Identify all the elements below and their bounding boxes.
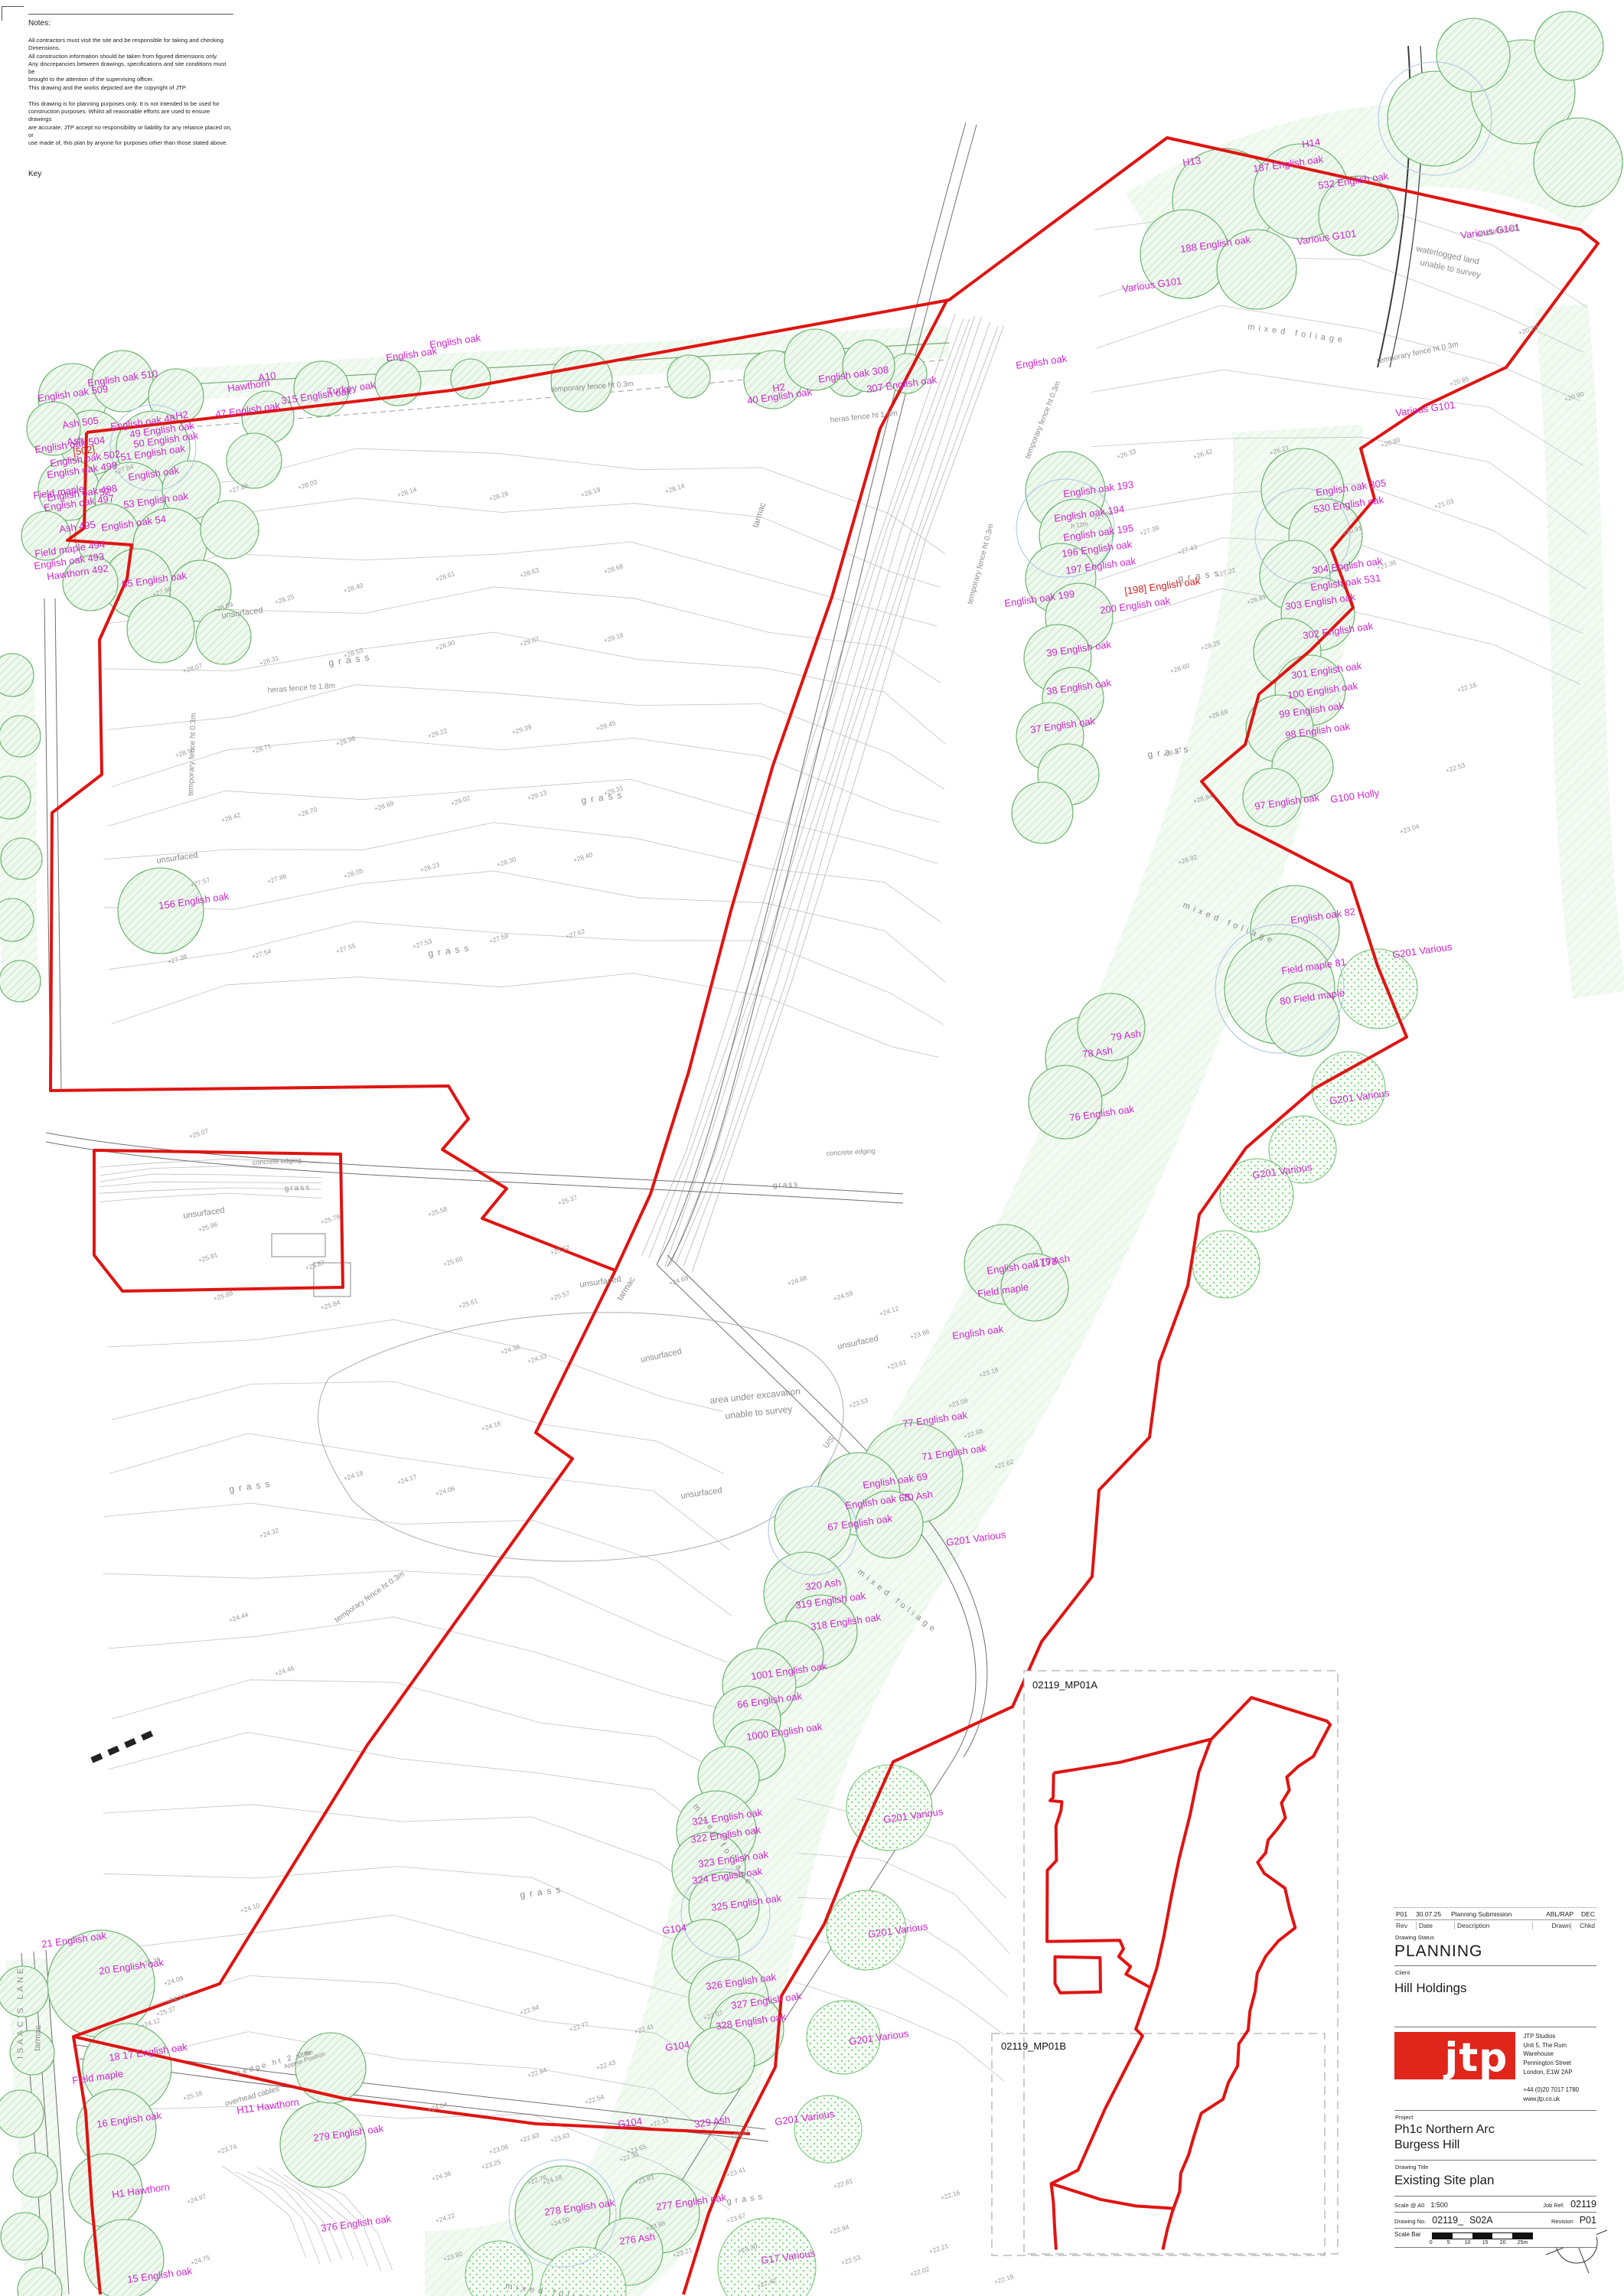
spot-height: +24.22 xyxy=(435,2211,456,2225)
spot-height: +27.39 xyxy=(1139,523,1160,537)
area-label: grass xyxy=(726,2192,767,2206)
scale-label: Scale @ A0 xyxy=(1394,2202,1424,2209)
drawing-no-value: S02A xyxy=(1469,2215,1493,2226)
contour-line xyxy=(109,1433,729,1550)
client-name: Hill Holdings xyxy=(1394,1981,1596,1996)
drawing-no-label: Drawing No. xyxy=(1394,2218,1426,2225)
inset-a-label: 02119_MP01A xyxy=(1032,1679,1097,1691)
spot-height: +22.53 xyxy=(840,2253,862,2267)
spot-height: +28.26 xyxy=(488,489,510,503)
tree-canopy xyxy=(0,960,41,1002)
spot-height: +24.10 xyxy=(240,1901,261,1915)
spot-height: +24.32 xyxy=(259,1526,280,1540)
inset-a-box xyxy=(1024,1671,1338,2254)
area-label: temporary fence ht 0.3m xyxy=(333,1570,406,1624)
spot-height: +25.84 xyxy=(320,1298,341,1312)
spot-height: +25.60 xyxy=(442,1254,464,1268)
contour-line xyxy=(112,974,939,1058)
contour-line xyxy=(112,1381,724,1473)
spot-height: +26.33 xyxy=(1116,447,1137,461)
tree-canopy xyxy=(551,351,612,412)
spot-height: +28.03 xyxy=(297,478,318,491)
area-label: concrete edging xyxy=(253,1156,302,1166)
spot-height: +22.53 xyxy=(1445,761,1466,775)
site-plan-map: English oak 509English oak 510Ash 505Eng… xyxy=(0,0,1624,2296)
area-label: unsurfaced xyxy=(183,1206,226,1221)
drawing-title: Existing Site plan xyxy=(1394,2173,1596,2188)
spot-height: +28.31 xyxy=(259,654,280,667)
area-label: unable to survey xyxy=(725,1404,793,1421)
area-label: tarmac xyxy=(33,2025,43,2052)
spot-height: +24.88 xyxy=(787,1274,808,1287)
spot-height: +25.78 xyxy=(320,1212,341,1226)
scale-value: 1:500 xyxy=(1430,2201,1448,2209)
spot-height: +28.98 xyxy=(335,734,357,748)
spot-height: +25.87 xyxy=(305,1258,326,1272)
tree-label: H2 xyxy=(174,409,189,422)
spot-height: +24.59 xyxy=(833,1289,854,1303)
shrub-mass xyxy=(794,2095,862,2163)
spot-height: +22.21 xyxy=(928,2242,950,2255)
area-label: heras fence ht 1.8m xyxy=(830,409,898,425)
drawing-status-label: Drawing Status xyxy=(1395,1934,1596,1941)
spot-height: +22.94 xyxy=(519,2003,540,2017)
contour-line xyxy=(222,2166,306,2258)
spot-height: +28.71 xyxy=(251,742,272,755)
rev-description: Planning Submission xyxy=(1451,1910,1538,1918)
contour-line xyxy=(649,319,964,1258)
project-label: Project xyxy=(1395,2114,1596,2121)
spot-height: +24.06 xyxy=(435,1484,456,1498)
spot-height: +28.19 xyxy=(580,485,602,499)
spot-height: +24.97 xyxy=(186,2192,207,2206)
spot-height: +28.07 xyxy=(182,661,204,675)
area-label: tarmac xyxy=(751,501,768,529)
spot-height: +24.36 xyxy=(431,2169,452,2183)
tree-canopy xyxy=(280,2102,366,2187)
tree-canopy xyxy=(1029,1065,1102,1139)
area-label: unsurfaced xyxy=(680,1486,723,1501)
spot-height: +23.86 xyxy=(909,1327,931,1341)
spot-height: +25.61 xyxy=(458,1296,479,1310)
spot-height: +27.59 xyxy=(488,931,510,945)
spot-height: +29.07 xyxy=(519,634,540,648)
spot-height: +22.54 xyxy=(584,2092,605,2106)
contour-line xyxy=(657,319,970,1264)
contour-line xyxy=(104,1503,732,1616)
notes-paragraph-2: This drawing is for planning purposes on… xyxy=(28,100,233,148)
drawing-sheet: { "notes": { "title": "Notes:", "para1":… xyxy=(0,0,1624,2296)
spot-height: +24.12 xyxy=(879,1304,900,1318)
scale-bar: 0 5 10 15 20 25m xyxy=(1432,2232,1538,2245)
area-label: grass xyxy=(519,1883,566,1900)
spot-height: +29.22 xyxy=(427,726,448,740)
tree-label: 376 English oak xyxy=(320,2213,392,2234)
tree-label: G201 Various xyxy=(1391,941,1453,960)
spot-height: +28.25 xyxy=(274,592,295,606)
spot-height: +27.38 xyxy=(167,952,188,966)
tree-canopy xyxy=(1534,11,1603,80)
spot-height: +22.81 xyxy=(833,2177,854,2190)
revision-row: P01 30.07.25 Planning Submission ABL/RAP… xyxy=(1394,1908,1596,1919)
spot-height: +23.67 xyxy=(726,2211,747,2225)
tree-label: English oak xyxy=(429,332,481,351)
spot-height: +23.06 xyxy=(488,2142,510,2156)
area-label: temporary fence ht 0.3m xyxy=(966,523,996,605)
drawing-title-label: Drawing Title xyxy=(1395,2164,1596,2170)
drawing-status: PLANNING xyxy=(1394,1942,1596,1961)
area-label: ISAAC'S LANE xyxy=(16,1965,25,2059)
project-line2: Burgess Hill xyxy=(1394,2138,1596,2154)
key-plan-insets xyxy=(992,1671,1338,2255)
spot-height: +24.33 xyxy=(527,1352,548,1365)
tree-canopy xyxy=(0,716,41,757)
revision-value: P01 xyxy=(1580,2215,1596,2226)
rev-value: P01 xyxy=(1396,1910,1416,1918)
contour-line xyxy=(99,1174,321,1182)
spot-height: +27.54 xyxy=(251,947,272,960)
spot-height: +25.18 xyxy=(182,2089,204,2102)
tree-canopy xyxy=(667,355,710,398)
spot-height: +24.69 xyxy=(668,1274,690,1287)
area-label: unsurfaced xyxy=(579,1275,622,1290)
contour-line xyxy=(99,1193,321,1202)
tree-canopy xyxy=(1534,118,1622,207)
tree-canopy xyxy=(687,2027,755,2094)
header-rev: Rev xyxy=(1396,1922,1416,1929)
area-label: unsurfaced xyxy=(156,851,199,866)
rev-date: 30.07.25 xyxy=(1416,1910,1451,1918)
notes-block: Notes: All contractors must visit the si… xyxy=(28,14,233,178)
tree-label: G100 Holly xyxy=(1329,787,1380,805)
job-ref-value: 02119 xyxy=(1570,2199,1596,2210)
spot-height: +23.25 xyxy=(481,2157,502,2171)
spot-height: +25.37 xyxy=(557,1193,579,1207)
contour-line xyxy=(108,1617,722,1709)
site-boundary xyxy=(51,138,1598,2294)
spot-height: +27.43 xyxy=(1177,543,1198,556)
contour-line xyxy=(109,1732,730,1851)
area-label: grass xyxy=(427,942,474,959)
jtp-logo-text: jtp xyxy=(1445,2035,1508,2081)
tree-canopy xyxy=(1,2213,48,2260)
rev-chkd: DEC xyxy=(1573,1910,1595,1918)
spot-height: +23.83 xyxy=(549,2131,571,2144)
spot-height: +28.40 xyxy=(343,581,364,595)
area-label: grass xyxy=(285,1183,311,1193)
revision-label: Revision xyxy=(1551,2218,1573,2225)
area-label: area under excavation xyxy=(709,1386,801,1406)
key-heading: Key xyxy=(28,170,233,178)
area-label: temporary fence ht 0.3m xyxy=(1024,380,1063,461)
spot-height: +22.77 xyxy=(569,2020,590,2033)
spot-height: +21.03 xyxy=(1433,497,1455,510)
scale-bar-label: Scale Bar xyxy=(1394,2231,1421,2238)
contour-line xyxy=(109,1915,722,2007)
spot-height: +22.16 xyxy=(940,2188,961,2202)
spot-height: +28.90 xyxy=(435,638,456,652)
spot-height: +23.61 xyxy=(886,1358,908,1371)
contour-line xyxy=(103,1867,726,1958)
spot-height: +24.16 xyxy=(481,1419,502,1433)
header-chkd: Chkd xyxy=(1570,1922,1595,1929)
spot-height: +27.86 xyxy=(266,872,288,885)
spot-height: +22.18 xyxy=(993,2272,1015,2286)
spot-height: +26.42 xyxy=(1192,447,1214,461)
spot-height: +28.30 xyxy=(496,855,517,869)
spot-height: +27.57 xyxy=(190,876,211,889)
spot-height: +28.05 xyxy=(343,866,364,880)
tree-canopy xyxy=(1,838,42,879)
contour-line xyxy=(104,871,946,982)
spot-height: +28.70 xyxy=(297,805,318,819)
spot-height: +29.45 xyxy=(595,719,617,732)
spot-height: +27.88 xyxy=(228,481,249,495)
spot-height: +25.58 xyxy=(427,1205,448,1218)
tree-label: 52 xyxy=(98,485,110,498)
spot-height: +23.53 xyxy=(848,1396,869,1410)
spot-height: +28.89 xyxy=(373,799,395,813)
header-description: Description xyxy=(1454,1922,1532,1929)
sheet-corner-mark xyxy=(2,6,24,21)
spot-height: +20.73 xyxy=(1518,323,1539,337)
area-label: grass xyxy=(228,1478,275,1495)
contour-line xyxy=(670,317,982,1265)
area-label: concrete edging xyxy=(827,1147,876,1157)
spot-height: +24.38 xyxy=(500,1342,521,1356)
tree-label: English oak xyxy=(1015,353,1068,371)
header-date: Date xyxy=(1416,1922,1454,1929)
spot-height: +23.04 xyxy=(1399,822,1420,836)
spot-height: +27.62 xyxy=(565,927,586,941)
area-label: unsurfaced xyxy=(640,1347,683,1365)
notes-paragraph-1: All contractors must visit the site and … xyxy=(28,37,233,92)
notes-title: Notes: xyxy=(28,19,233,28)
spot-height: +23.74 xyxy=(217,2142,238,2156)
contour-line xyxy=(236,2172,320,2264)
spot-height: +28.42 xyxy=(220,810,242,824)
contour-line xyxy=(665,316,975,1267)
spot-height: +28.40 xyxy=(572,850,594,864)
studio-address: JTP Studios Unit 5, The Rum Warehouse Pe… xyxy=(1515,2032,1596,2104)
inset-b-label: 02119_MP01B xyxy=(1001,2040,1066,2052)
spot-height: +28.63 xyxy=(519,566,540,579)
spot-height: +24.18 xyxy=(343,1469,364,1482)
tree-canopy xyxy=(227,433,282,488)
area-label: temporary fence ht 0.3m xyxy=(1376,341,1459,366)
tree-canopy xyxy=(1436,18,1510,92)
spot-height: +25.07 xyxy=(188,1127,210,1140)
drawing-no-prefix: 02119_ xyxy=(1432,2215,1463,2226)
tree-canopy xyxy=(295,2033,366,2103)
contour-line xyxy=(112,737,940,822)
tree-canopy xyxy=(13,2153,57,2197)
spot-height: +24.09 xyxy=(163,1974,184,1988)
spot-height: +22.83 xyxy=(519,2131,540,2144)
shrub-mass xyxy=(1192,1231,1260,1298)
spot-height: +24.13 xyxy=(165,1991,187,2005)
spot-height: +28.23 xyxy=(419,860,441,874)
area-label: unsurfaced xyxy=(836,1334,879,1352)
tree-label: 200 English oak xyxy=(1099,595,1171,616)
contour-line xyxy=(103,1570,727,1662)
spot-height: +22.02 xyxy=(909,2265,931,2278)
spot-height: +28.60 xyxy=(1169,661,1191,675)
contour-line xyxy=(109,921,944,1025)
area-label: mixed foliage xyxy=(1247,322,1347,345)
revision-table-headers: Rev Date Description Drawn Chkd xyxy=(1394,1919,1596,1931)
spot-height: +28.14 xyxy=(664,481,686,495)
spot-height: +25.91 xyxy=(197,1251,219,1264)
jtp-logo: jtp xyxy=(1394,2032,1515,2079)
title-block: P01 30.07.25 Planning Submission ABL/RAP… xyxy=(1394,1907,1596,2248)
client-label: Client xyxy=(1395,1969,1596,1976)
scale-tick: 25m xyxy=(1518,2240,1538,2245)
spot-height: +29.13 xyxy=(527,788,548,802)
spot-height: +24.75 xyxy=(190,2253,211,2267)
spot-height: +24.17 xyxy=(396,1473,418,1486)
tree-canopy xyxy=(201,501,259,559)
spot-height: +22.94 xyxy=(829,2223,850,2236)
spot-height: +22.16 xyxy=(1456,680,1478,694)
job-ref-label: Job Ref. xyxy=(1543,2202,1564,2209)
contour-line xyxy=(100,1166,322,1176)
tree-canopy xyxy=(0,2090,44,2138)
spot-height: +29.18 xyxy=(603,631,624,644)
spot-height: +29.39 xyxy=(511,722,533,736)
spot-height: +25.96 xyxy=(197,1220,219,1234)
contour-line xyxy=(103,1805,732,1913)
tree-label: Various G101 xyxy=(1394,399,1456,419)
spot-height: +24.12 xyxy=(140,2016,161,2030)
tree-canopy xyxy=(451,359,491,399)
contour-line xyxy=(103,823,941,923)
project-line1: Ph1c Northern Arc xyxy=(1394,2122,1596,2138)
spot-height: +28.61 xyxy=(435,569,456,583)
spot-height: +24.46 xyxy=(274,1664,295,1678)
spot-height: +27.55 xyxy=(335,941,357,955)
spot-height: +22.43 xyxy=(595,2058,617,2072)
tree-canopy xyxy=(1012,782,1073,843)
rev-drawn: ABL/RAP xyxy=(1538,1910,1573,1918)
header-drawn: Drawn xyxy=(1532,1922,1570,1929)
spot-height: +20.80 xyxy=(1380,435,1401,449)
contour-line xyxy=(109,779,938,863)
tree-canopy xyxy=(127,595,194,663)
spot-height: +28.68 xyxy=(603,562,624,576)
spot-height: +28.14 xyxy=(396,485,418,499)
spot-height: +29.02 xyxy=(450,794,471,807)
area-label: U/S xyxy=(822,1435,836,1450)
area-label: grass xyxy=(773,1180,800,1190)
spot-height: +24.44 xyxy=(228,1610,249,1624)
spot-height: +25.57 xyxy=(549,1289,571,1303)
